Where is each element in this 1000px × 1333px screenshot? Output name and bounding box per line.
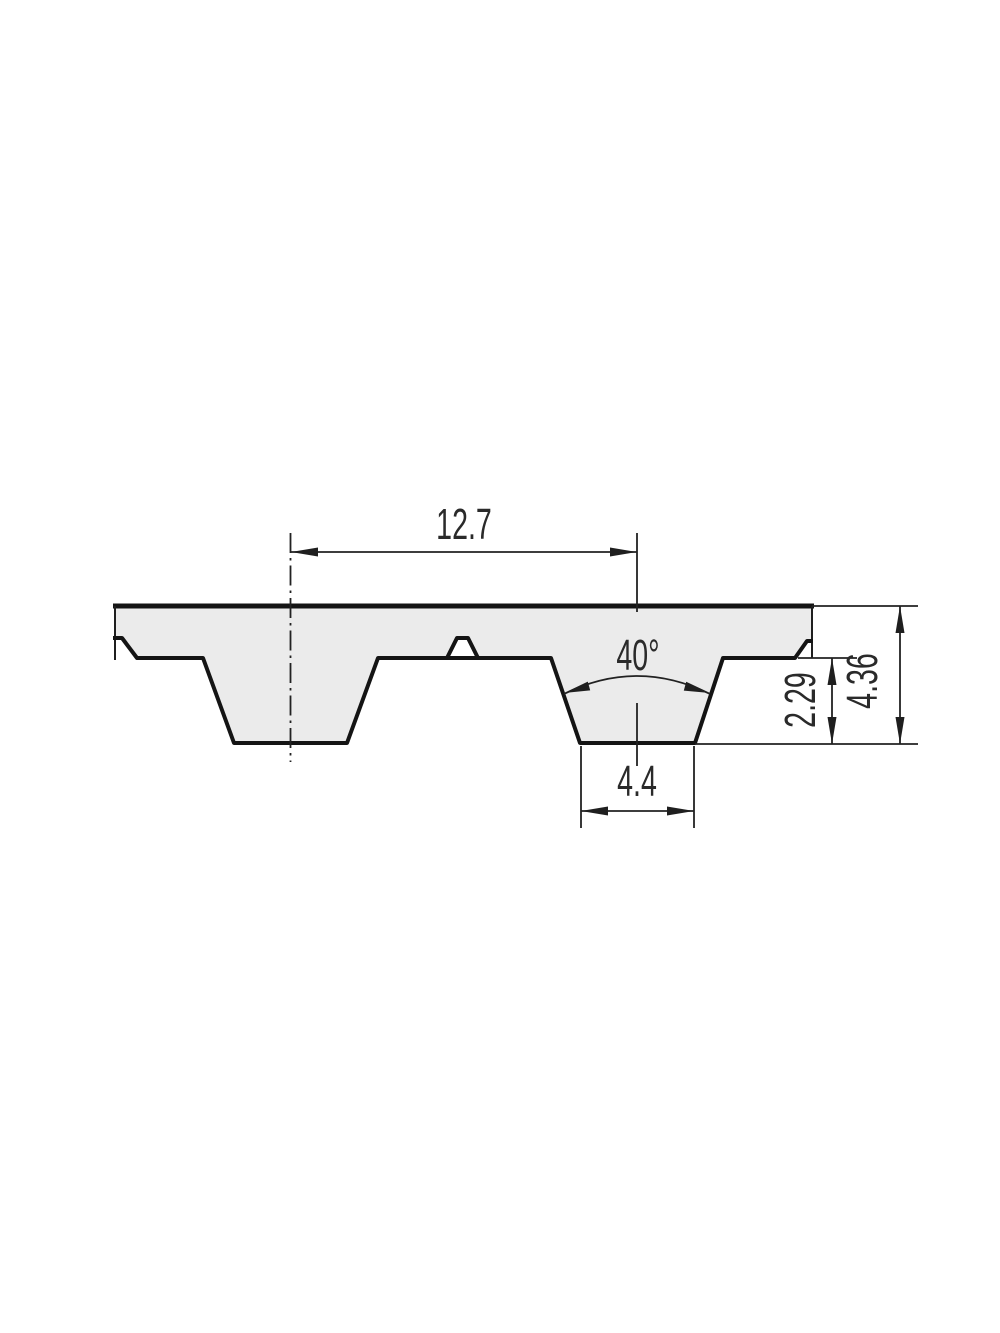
tooth-height-arrow-bottom	[828, 717, 837, 744]
belt-thickness-arrow-top	[896, 606, 905, 633]
tooth-width-arrow-left	[581, 807, 608, 816]
pitch-arrow-left	[291, 548, 318, 557]
pitch-arrow-right	[610, 548, 637, 557]
pitch-label: 12.7	[436, 499, 492, 549]
belt-profile-drawing: 12.7 40° 4.4 2.29	[0, 0, 1000, 1333]
tooth-height-arrow-top	[828, 658, 837, 685]
tooth-width-label: 4.4	[617, 756, 657, 806]
belt-thickness-arrow-bottom	[896, 717, 905, 744]
belt-body-fill	[115, 606, 812, 743]
belt-thickness-label: 4.36	[837, 653, 887, 709]
tooth-angle-label: 40°	[616, 630, 659, 680]
drawing-canvas: 12.7 40° 4.4 2.29	[0, 0, 1000, 1333]
tooth-height-label: 2.29	[775, 672, 825, 728]
tooth-width-arrow-right	[667, 807, 694, 816]
